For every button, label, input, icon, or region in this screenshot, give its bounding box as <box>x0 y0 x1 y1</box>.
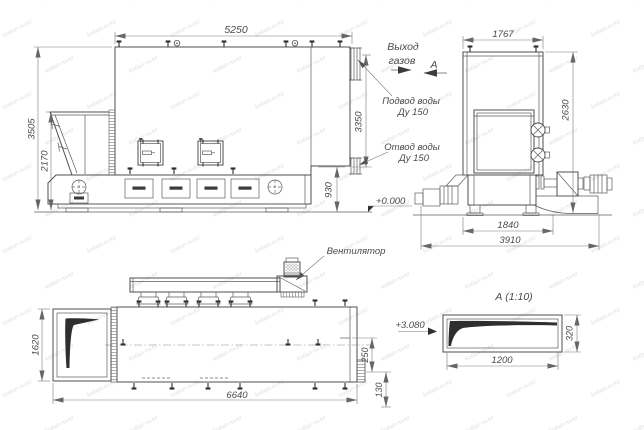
boiler-technical-drawing: 5250 3505 2170 3350 930 +0.000 <box>0 0 644 430</box>
lifting-eye-icon <box>174 40 180 46</box>
plan-hopper <box>53 309 111 381</box>
dim-930: 930 <box>324 181 335 198</box>
dim-2630: 2630 <box>561 99 572 122</box>
water-return-flange <box>349 158 362 174</box>
level-3080: +3.080 <box>395 320 425 331</box>
front-lower-section <box>467 175 539 216</box>
level-0000: +0.000 <box>376 196 406 207</box>
dim-3350: 3350 <box>354 111 365 133</box>
dim-2170: 2170 <box>40 150 51 173</box>
plan-dimensions: 1620 6640 250 130 <box>31 309 392 407</box>
gas-exit-label-1: Выход <box>387 41 419 53</box>
blower-fan <box>284 258 300 277</box>
dim-1767: 1767 <box>492 29 514 40</box>
level-mark-flag <box>428 328 437 336</box>
dim-3505: 3505 <box>27 118 38 140</box>
ash-door <box>197 179 225 198</box>
base-frame <box>48 169 311 213</box>
ash-door <box>231 179 259 198</box>
dim-250: 250 <box>360 347 370 363</box>
duct-branch <box>165 292 189 307</box>
valve-handwheel-icon <box>531 148 550 162</box>
dim-5250: 5250 <box>224 24 248 36</box>
dim-320: 320 <box>565 326 575 341</box>
furnace-door <box>198 139 223 167</box>
water-return-label-2: Ду 150 <box>398 153 430 164</box>
gas-outlet-flange <box>349 48 362 80</box>
section-outer <box>443 315 562 352</box>
dim-6640: 6640 <box>226 390 248 401</box>
fuel-hopper <box>50 110 115 175</box>
side-labels: Выход газов А Подвод воды Ду 150 Отвод в… <box>358 41 447 165</box>
handwheel-icon <box>72 180 86 194</box>
section-letter: А <box>429 59 437 71</box>
dim-1200: 1200 <box>491 355 513 366</box>
front-wall-hatch <box>109 110 115 175</box>
dim-130: 130 <box>374 382 384 397</box>
roof-anchor-bolts <box>117 40 343 47</box>
dim-3910: 3910 <box>499 235 521 246</box>
duct-elbow <box>277 276 307 297</box>
front-view: 1767 2630 1840 3910 <box>413 29 612 250</box>
front-wall-hatch <box>111 307 117 382</box>
furnace-door <box>138 139 163 167</box>
hopper-wedge <box>65 318 99 368</box>
plan-labels: Вентилятор <box>296 246 385 280</box>
return-leader <box>359 152 388 165</box>
lifting-eye-icon <box>292 40 298 46</box>
front-door <box>474 110 534 173</box>
section-a-title: А (1:10) <box>494 291 532 303</box>
section-a-view: А (1:10) 1200 320 +3.080 <box>395 291 581 370</box>
water-return-label-1: Отвод воды <box>384 142 440 153</box>
ash-door <box>162 179 190 198</box>
fan-label: Вентилятор <box>327 246 386 257</box>
drawing-sheet: kotlan-nv.kzkotlan-nv.kzkotlan-nv.kzkotl… <box>0 0 644 430</box>
draft-fan-assembly <box>415 175 468 206</box>
duct-branch <box>137 292 161 307</box>
valve-handwheel-icon <box>531 123 550 137</box>
water-supply-label-1: Подвод воды <box>382 96 440 107</box>
gas-exit-label-2: газов <box>389 55 416 67</box>
duct-branch <box>197 292 221 307</box>
front-dimensions: 1767 2630 1840 3910 <box>421 29 599 250</box>
side-elevation-view: 5250 3505 2170 3350 930 +0.000 <box>27 24 448 212</box>
boiler-body-outline <box>115 47 350 175</box>
dim-1840: 1840 <box>497 220 519 231</box>
duct-branch <box>229 292 253 307</box>
plan-body-outline <box>117 307 357 382</box>
level-mark-flag <box>368 206 374 212</box>
supply-leader <box>358 60 392 96</box>
air-duct-manifold <box>130 258 307 307</box>
dim-1620: 1620 <box>31 334 42 356</box>
ash-door <box>125 179 153 198</box>
water-supply-label-2: Ду 150 <box>397 107 429 118</box>
handwheel-icon <box>268 180 282 194</box>
plan-bolts <box>121 301 348 389</box>
section-wedge <box>449 321 558 346</box>
plan-view: 1620 6640 250 130 Вентилятор <box>31 246 392 407</box>
